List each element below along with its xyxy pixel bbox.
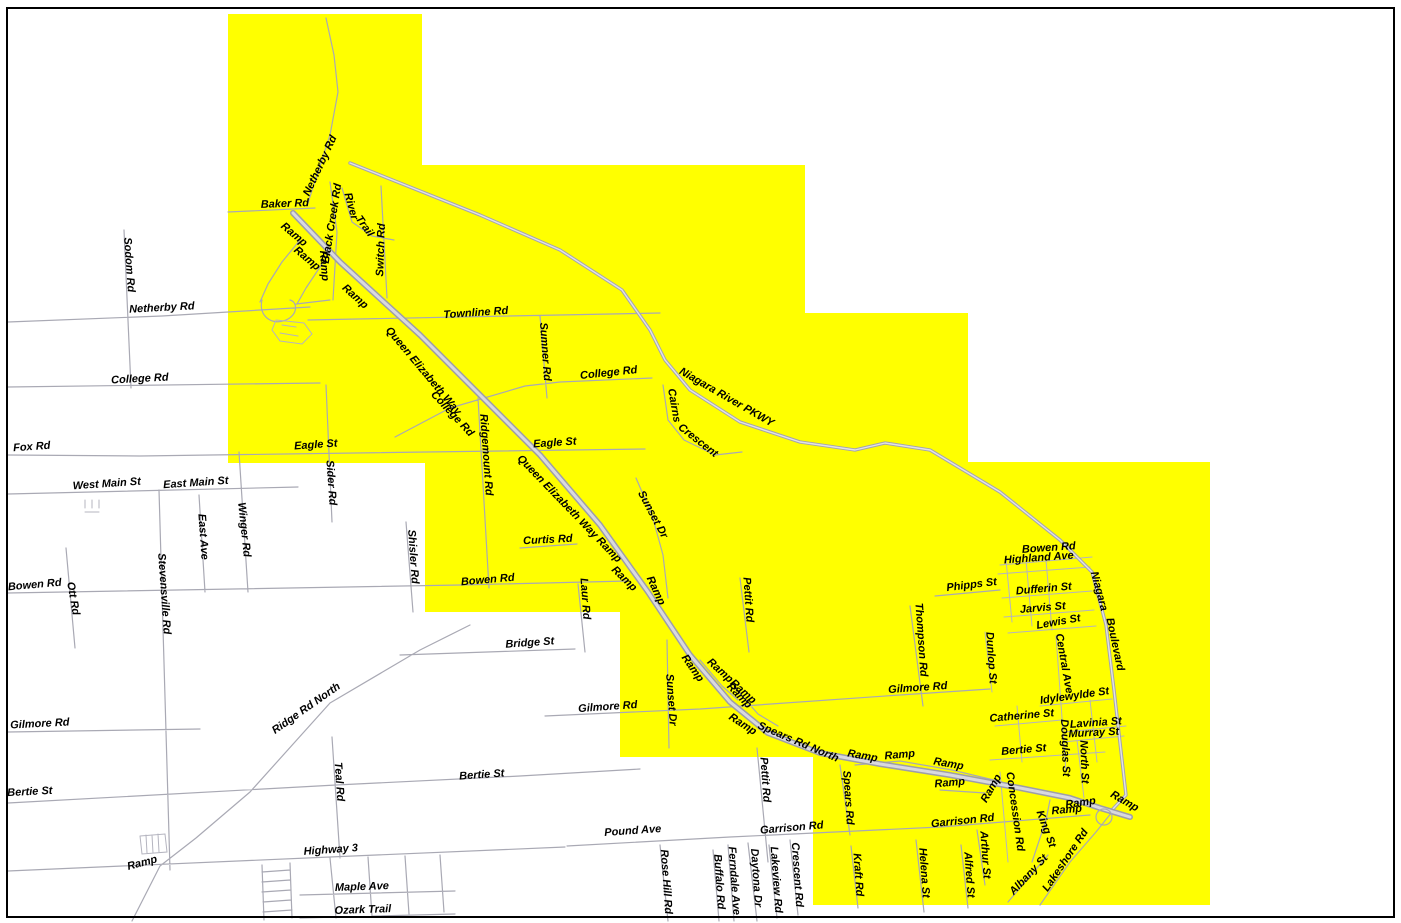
road-label: North St [1077, 740, 1091, 785]
road-label: Ozark Trail [334, 903, 392, 917]
road-label: Baker Rd [261, 197, 310, 211]
road-label: Douglas St [1058, 719, 1072, 778]
road-label: Maple Ave [335, 880, 389, 894]
map-frame: Netherby RdBaker RdRampRampRampRampBlack… [0, 0, 1401, 923]
map-canvas[interactable]: Netherby RdBaker RdRampRampRampRampBlack… [0, 0, 1401, 923]
road-label: Switch Rd [374, 223, 388, 277]
road-label: Bertie St [7, 785, 54, 799]
